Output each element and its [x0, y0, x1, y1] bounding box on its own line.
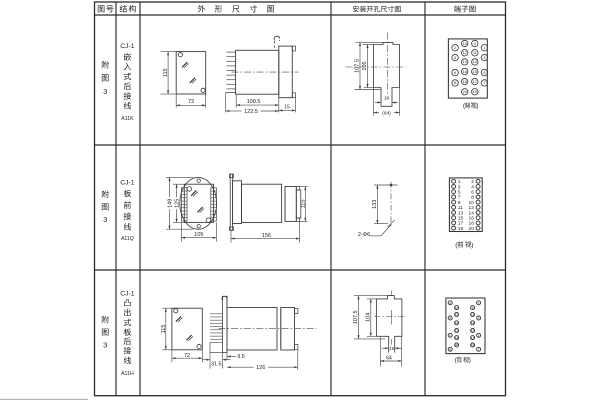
svg-text:4: 4 [454, 56, 456, 60]
svg-text:15: 15 [284, 104, 290, 110]
svg-text:CJ-1: CJ-1 [120, 43, 135, 50]
svg-text:10: 10 [463, 42, 467, 46]
svg-text:133: 133 [372, 200, 378, 209]
svg-text:7: 7 [483, 81, 485, 85]
svg-text:16: 16 [384, 95, 390, 101]
svg-text:19: 19 [473, 90, 477, 94]
svg-text:5: 5 [483, 71, 485, 75]
svg-text:15: 15 [471, 329, 475, 333]
svg-text:18: 18 [463, 80, 467, 84]
svg-text:13: 13 [473, 60, 477, 64]
svg-text:6: 6 [454, 71, 456, 75]
svg-text:115: 115 [161, 325, 167, 334]
svg-text:5: 5 [458, 190, 461, 196]
svg-text:20: 20 [463, 90, 467, 94]
svg-text:9.5: 9.5 [237, 354, 244, 360]
svg-text:13: 13 [458, 210, 464, 216]
svg-text:3: 3 [483, 56, 485, 60]
svg-text:10: 10 [455, 306, 459, 310]
svg-text:3: 3 [103, 87, 107, 96]
svg-text:CJ-1: CJ-1 [120, 290, 135, 297]
svg-text:(64): (64) [382, 110, 391, 116]
svg-text:10: 10 [469, 200, 475, 206]
svg-text:4: 4 [471, 184, 474, 190]
svg-text:20: 20 [455, 343, 459, 347]
svg-text:122.5: 122.5 [244, 109, 258, 115]
svg-text:17: 17 [471, 336, 475, 340]
svg-text:19: 19 [458, 226, 464, 232]
svg-text:149: 149 [168, 199, 174, 208]
svg-text:16: 16 [389, 346, 394, 351]
svg-text:18: 18 [455, 336, 459, 340]
svg-text:11: 11 [471, 313, 474, 317]
svg-text:104: 104 [365, 313, 371, 322]
svg-text:107.5: 107.5 [353, 310, 359, 324]
svg-text:A11K: A11K [121, 116, 134, 122]
svg-text:2: 2 [454, 46, 456, 50]
svg-text:1: 1 [458, 179, 461, 185]
svg-text:126: 126 [256, 365, 265, 371]
svg-text:14: 14 [463, 60, 467, 64]
svg-text:): ) [471, 242, 473, 249]
svg-text:100.5: 100.5 [247, 99, 261, 105]
svg-text:6: 6 [471, 190, 474, 196]
svg-text:2: 2 [471, 179, 474, 185]
svg-text:31.5: 31.5 [211, 361, 221, 367]
svg-text:16: 16 [455, 329, 459, 333]
svg-text:3: 3 [103, 215, 107, 224]
svg-text:7: 7 [458, 195, 461, 201]
svg-text:15: 15 [473, 70, 477, 74]
svg-text:17: 17 [473, 80, 477, 84]
svg-text:125: 125 [175, 199, 181, 208]
svg-text:20: 20 [469, 226, 475, 232]
svg-text:A11Q: A11Q [121, 236, 134, 242]
svg-text:8: 8 [454, 81, 456, 85]
svg-text:12: 12 [469, 205, 475, 211]
svg-text:156: 156 [262, 233, 271, 239]
svg-text:115: 115 [301, 200, 307, 209]
svg-text:12: 12 [455, 313, 459, 317]
svg-text:9: 9 [458, 200, 461, 206]
svg-text:14: 14 [455, 321, 459, 325]
svg-text:14: 14 [469, 210, 475, 216]
svg-text:115: 115 [163, 68, 169, 77]
svg-text:12: 12 [463, 51, 467, 55]
svg-text:15: 15 [458, 216, 464, 222]
svg-text:): ) [469, 357, 471, 364]
svg-text:1: 1 [483, 46, 485, 50]
svg-text:18: 18 [469, 221, 475, 227]
svg-text:17: 17 [458, 221, 464, 227]
svg-text:16: 16 [463, 70, 467, 74]
svg-text:2-Φ6: 2-Φ6 [358, 232, 370, 238]
svg-text:107.5: 107.5 [354, 59, 360, 73]
svg-text:13: 13 [471, 321, 475, 325]
svg-text:19: 19 [471, 343, 475, 347]
svg-text:16: 16 [469, 216, 475, 222]
svg-text:11: 11 [458, 205, 463, 211]
svg-text:9: 9 [474, 42, 476, 46]
svg-text:CJ-1: CJ-1 [120, 179, 135, 186]
svg-text:105: 105 [194, 232, 203, 238]
svg-text:A11H: A11H [121, 371, 134, 377]
svg-text:8: 8 [471, 195, 474, 201]
svg-text:64: 64 [386, 355, 392, 361]
svg-text:3: 3 [458, 184, 461, 190]
svg-text:11: 11 [473, 51, 477, 55]
svg-text:3: 3 [103, 340, 107, 349]
svg-text:105: 105 [362, 61, 368, 70]
svg-text:72: 72 [184, 353, 190, 359]
svg-text:): ) [476, 103, 478, 110]
svg-text:72: 72 [188, 99, 194, 105]
